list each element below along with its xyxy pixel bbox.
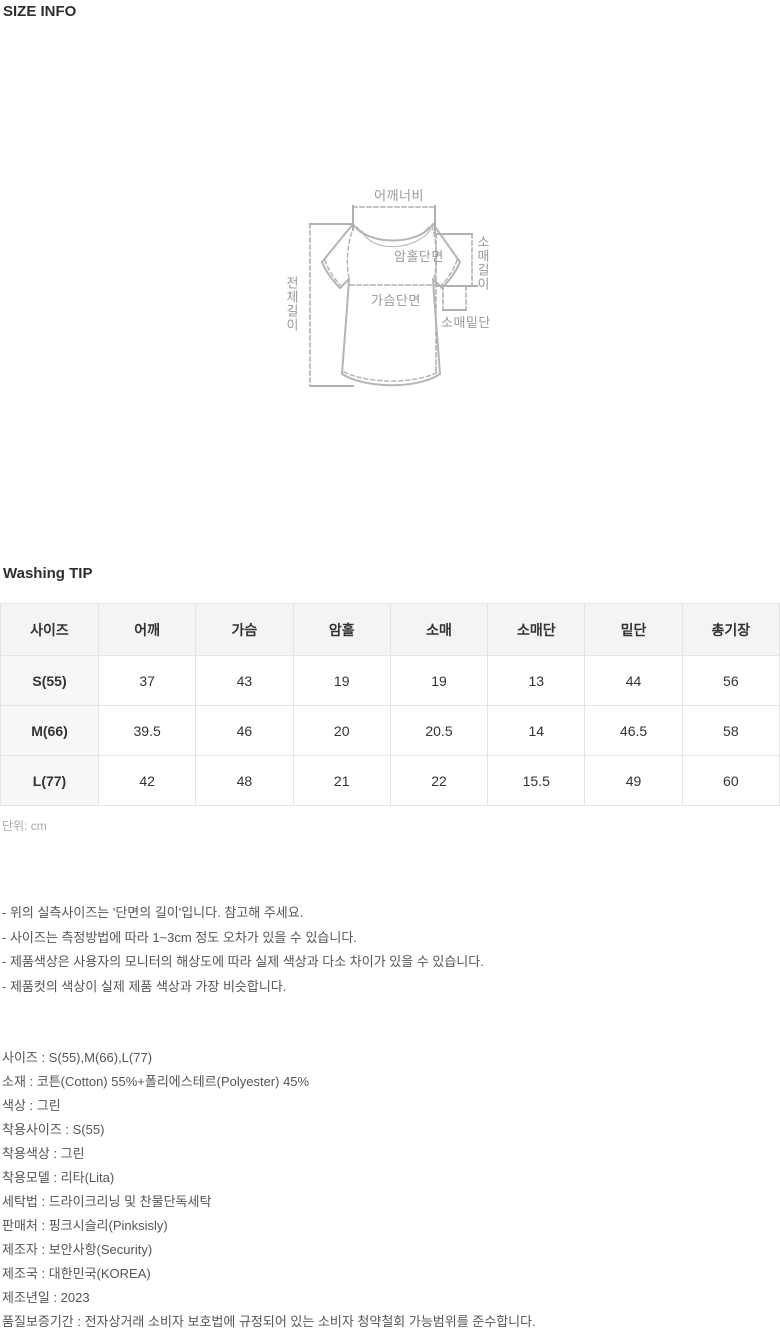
washing-tip-title: Washing TIP: [3, 565, 92, 582]
detail-warranty: 품질보증기간 : 전자상거래 소비자 보호법에 규정되어 있는 소비자 청약철회…: [2, 1310, 536, 1334]
detail-fitted-color: 착용색상 : 그린: [2, 1142, 536, 1166]
size-row-m: M(66) 39.5 46 20 20.5 14 46.5 58: [1, 706, 780, 756]
size-info-page: SIZE INFO: [0, 0, 780, 1337]
column-header-chest: 가슴: [196, 604, 293, 656]
detail-fitted-size: 착용사이즈 : S(55): [2, 1118, 536, 1142]
size-table: 사이즈 어깨 가슴 암홀 소매 소매단 밑단 총기장 S(55) 37 43 1…: [0, 603, 780, 806]
column-header-sleeve: 소매: [390, 604, 487, 656]
diagram-label-armhole: 암홀단면: [394, 246, 444, 265]
size-cell: 42: [99, 756, 196, 806]
diagram-label-sleeve-hem: 소매밑단: [441, 312, 491, 331]
size-cell: 20.5: [390, 706, 487, 756]
detail-material: 소재 : 코튼(Cotton) 55%+폴리에스테르(Polyester) 45…: [2, 1070, 536, 1094]
size-cell: 48: [196, 756, 293, 806]
size-cell: 56: [682, 656, 779, 706]
size-cell: 20: [293, 706, 390, 756]
detail-seller: 판매처 : 핑크시슬리(Pinksisly): [2, 1214, 536, 1238]
size-cell: 58: [682, 706, 779, 756]
column-header-sleeve-hem: 소매단: [488, 604, 585, 656]
size-info-title: SIZE INFO: [3, 3, 76, 20]
size-row-label: L(77): [1, 756, 99, 806]
size-cell: 19: [293, 656, 390, 706]
size-row-l: L(77) 42 48 21 22 15.5 49 60: [1, 756, 780, 806]
size-cell: 14: [488, 706, 585, 756]
note-line: - 제품컷의 색상이 실제 제품 색상과 가장 비슷합니다.: [2, 975, 484, 1000]
size-table-header-row: 사이즈 어깨 가슴 암홀 소매 소매단 밑단 총기장: [1, 604, 780, 656]
note-line: - 위의 실측사이즈는 '단면의 길이'입니다. 참고해 주세요.: [2, 901, 484, 926]
unit-label: 단위: cm: [2, 817, 47, 834]
tshirt-outline-illustration: [270, 175, 650, 405]
size-cell: 22: [390, 756, 487, 806]
column-header-total-length: 총기장: [682, 604, 779, 656]
detail-year: 제조년일 : 2023: [2, 1286, 536, 1310]
column-header-armhole: 암홀: [293, 604, 390, 656]
size-row-label: M(66): [1, 706, 99, 756]
detail-country: 제조국 : 대한민국(KOREA): [2, 1262, 536, 1286]
size-cell: 13: [488, 656, 585, 706]
size-cell: 21: [293, 756, 390, 806]
diagram-label-shoulder-width: 어깨너비: [362, 185, 436, 204]
detail-manufacturer: 제조자 : 보안사항(Security): [2, 1238, 536, 1262]
size-cell: 44: [585, 656, 682, 706]
detail-size: 사이즈 : S(55),M(66),L(77): [2, 1046, 536, 1070]
column-header-size: 사이즈: [1, 604, 99, 656]
size-notes: - 위의 실측사이즈는 '단면의 길이'입니다. 참고해 주세요. - 사이즈는…: [2, 901, 484, 999]
product-details: 사이즈 : S(55),M(66),L(77) 소재 : 코튼(Cotton) …: [2, 1046, 536, 1334]
note-line: - 제품색상은 사용자의 모니터의 해상도에 따라 실제 색상과 다소 차이가 …: [2, 950, 484, 975]
size-row-label: S(55): [1, 656, 99, 706]
size-cell: 19: [390, 656, 487, 706]
diagram-label-total-length: 전체길이: [285, 276, 298, 332]
detail-model: 착용모델 : 리타(Lita): [2, 1166, 536, 1190]
size-row-s: S(55) 37 43 19 19 13 44 56: [1, 656, 780, 706]
size-cell: 60: [682, 756, 779, 806]
size-cell: 37: [99, 656, 196, 706]
size-cell: 49: [585, 756, 682, 806]
detail-washing: 세탁법 : 드라이크리닝 및 찬물단독세탁: [2, 1190, 536, 1214]
tshirt-measurement-diagram: 어깨너비 전체길이 암홀단면 가슴단면 소매길이 소매밑단: [270, 175, 650, 405]
note-line: - 사이즈는 측정방법에 따라 1~3cm 정도 오차가 있을 수 있습니다.: [2, 926, 484, 951]
column-header-bottom-hem: 밑단: [585, 604, 682, 656]
size-cell: 15.5: [488, 756, 585, 806]
diagram-label-sleeve-length: 소매길이: [476, 235, 489, 291]
size-cell: 39.5: [99, 706, 196, 756]
size-cell: 46.5: [585, 706, 682, 756]
size-cell: 43: [196, 656, 293, 706]
column-header-shoulder: 어깨: [99, 604, 196, 656]
size-cell: 46: [196, 706, 293, 756]
detail-color: 색상 : 그린: [2, 1094, 536, 1118]
diagram-label-chest: 가슴단면: [371, 290, 421, 309]
